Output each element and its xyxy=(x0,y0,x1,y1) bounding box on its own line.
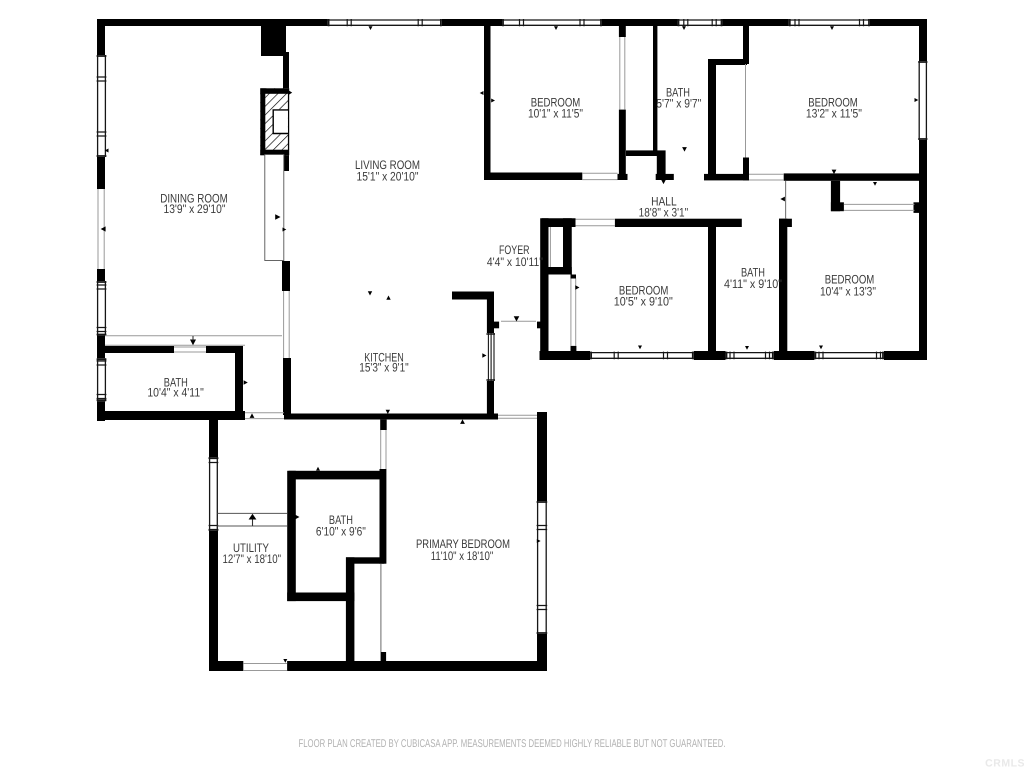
svg-text:12'7" x 18'10": 12'7" x 18'10" xyxy=(223,552,282,566)
svg-text:10'1" x 11'5": 10'1" x 11'5" xyxy=(528,107,583,121)
svg-text:FLOOR PLAN CREATED BY CUBICASA: FLOOR PLAN CREATED BY CUBICASA APP. MEAS… xyxy=(299,738,726,750)
svg-text:15'1" x 20'10": 15'1" x 20'10" xyxy=(357,170,419,184)
svg-text:10'5" x 9'10": 10'5" x 9'10" xyxy=(614,295,673,309)
svg-text:CRMLS: CRMLS xyxy=(985,758,1024,768)
svg-text:5'7" x 9'7": 5'7" x 9'7" xyxy=(656,97,701,111)
svg-text:11'10" x 18'10": 11'10" x 18'10" xyxy=(431,549,494,563)
svg-text:10'4" x 4'11": 10'4" x 4'11" xyxy=(147,385,204,399)
svg-text:18'8" x 3'1": 18'8" x 3'1" xyxy=(639,205,689,219)
svg-text:10'4" x 13'3": 10'4" x 13'3" xyxy=(820,285,876,299)
svg-text:13'9" x 29'10": 13'9" x 29'10" xyxy=(164,202,226,216)
svg-text:6'10" x 9'6": 6'10" x 9'6" xyxy=(316,524,366,538)
svg-text:15'3" x 9'1": 15'3" x 9'1" xyxy=(359,360,409,374)
svg-text:13'2" x 11'5": 13'2" x 11'5" xyxy=(806,107,862,121)
svg-text:4'4" x 10'11": 4'4" x 10'11" xyxy=(487,255,543,269)
svg-text:4'11" x 9'10": 4'11" x 9'10" xyxy=(724,277,782,291)
